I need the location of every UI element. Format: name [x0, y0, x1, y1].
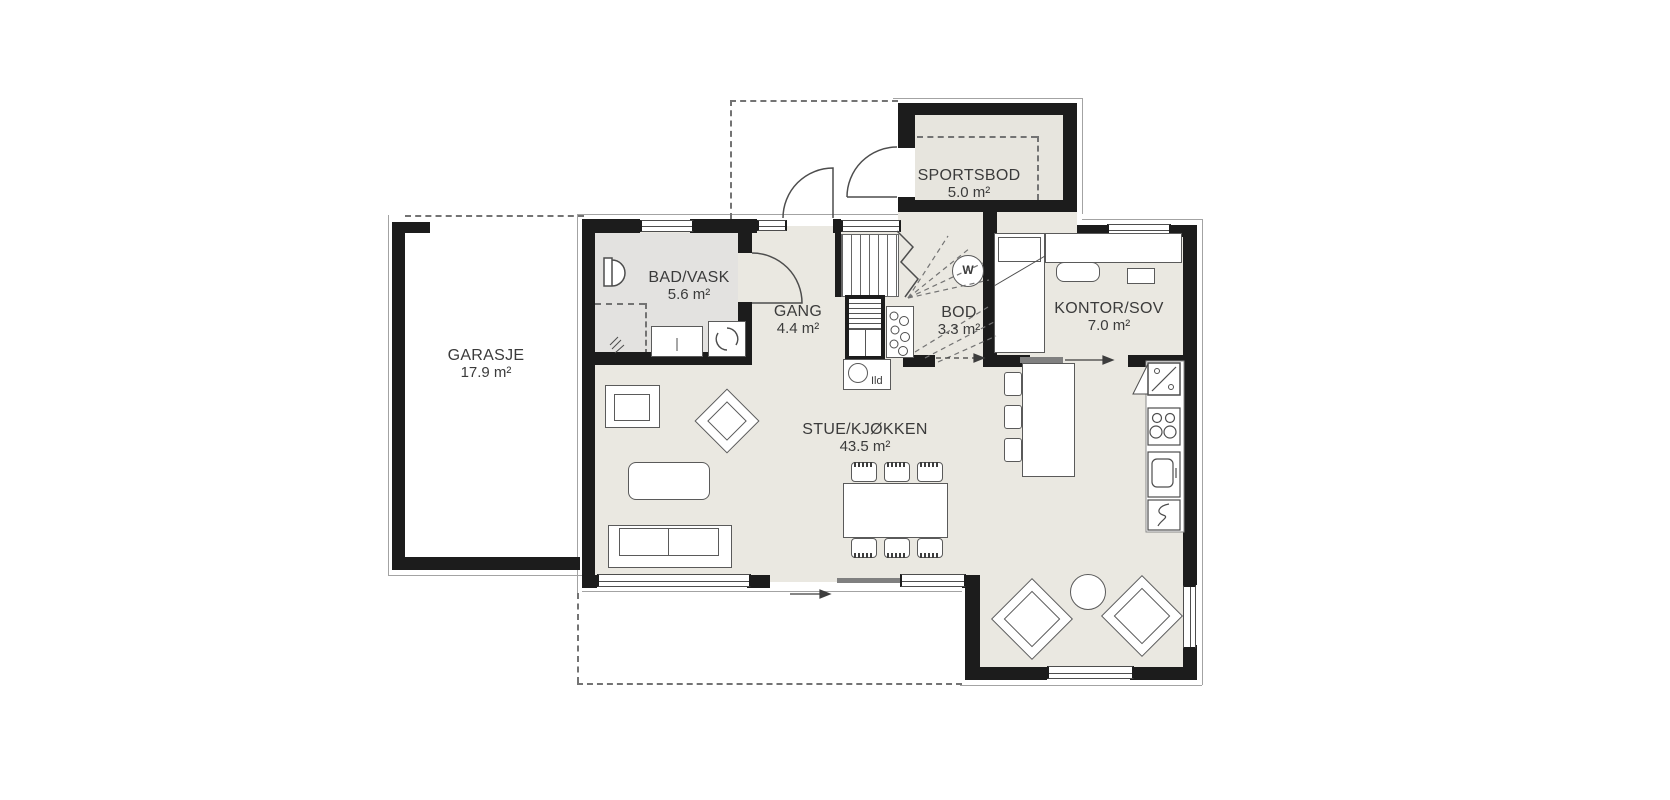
- room-label-garasje: GARASJE 17.9 m²: [396, 347, 576, 381]
- plan-linework: [0, 0, 1670, 800]
- room-label-sportsbod: SPORTSBOD 5.0 m²: [879, 167, 1059, 201]
- entry-door-swing: [783, 168, 833, 218]
- sink-icon: [1148, 452, 1180, 497]
- shower-drain-icon: [610, 337, 624, 353]
- room-area: 5.6 m²: [599, 286, 779, 303]
- room-name: SPORTSBOD: [879, 167, 1059, 184]
- winder-dashed-lines: [908, 236, 996, 362]
- room-area: 4.4 m²: [708, 320, 888, 337]
- room-label-gang: GANG 4.4 m²: [708, 303, 888, 337]
- room-label-bad-vask: BAD/VASK 5.6 m²: [599, 269, 779, 303]
- room-area: 17.9 m²: [396, 364, 576, 381]
- door-arrows: [790, 354, 1113, 598]
- room-name: STUE/KJØKKEN: [765, 421, 965, 438]
- room-label-kontor-sov: KONTOR/SOV 7.0 m²: [1019, 300, 1199, 334]
- fridge-icon: [1148, 500, 1180, 530]
- bed-fold-line: [994, 256, 1045, 286]
- room-name: GANG: [708, 303, 888, 320]
- room-name: KONTOR/SOV: [1019, 300, 1199, 317]
- floor-plan-canvas: Ild W: [0, 0, 1670, 800]
- room-label-stue-kjokken: STUE/KJØKKEN 43.5 m²: [765, 421, 965, 455]
- corner-cabinet: [1133, 364, 1148, 394]
- room-name: BAD/VASK: [599, 269, 779, 286]
- room-area: 7.0 m²: [1019, 317, 1199, 334]
- cooktop-icon: [1148, 408, 1180, 445]
- dishwasher-icon: [1148, 363, 1180, 395]
- room-area: 5.0 m²: [879, 184, 1059, 201]
- room-area: 43.5 m²: [765, 438, 965, 455]
- room-name: GARASJE: [396, 347, 576, 364]
